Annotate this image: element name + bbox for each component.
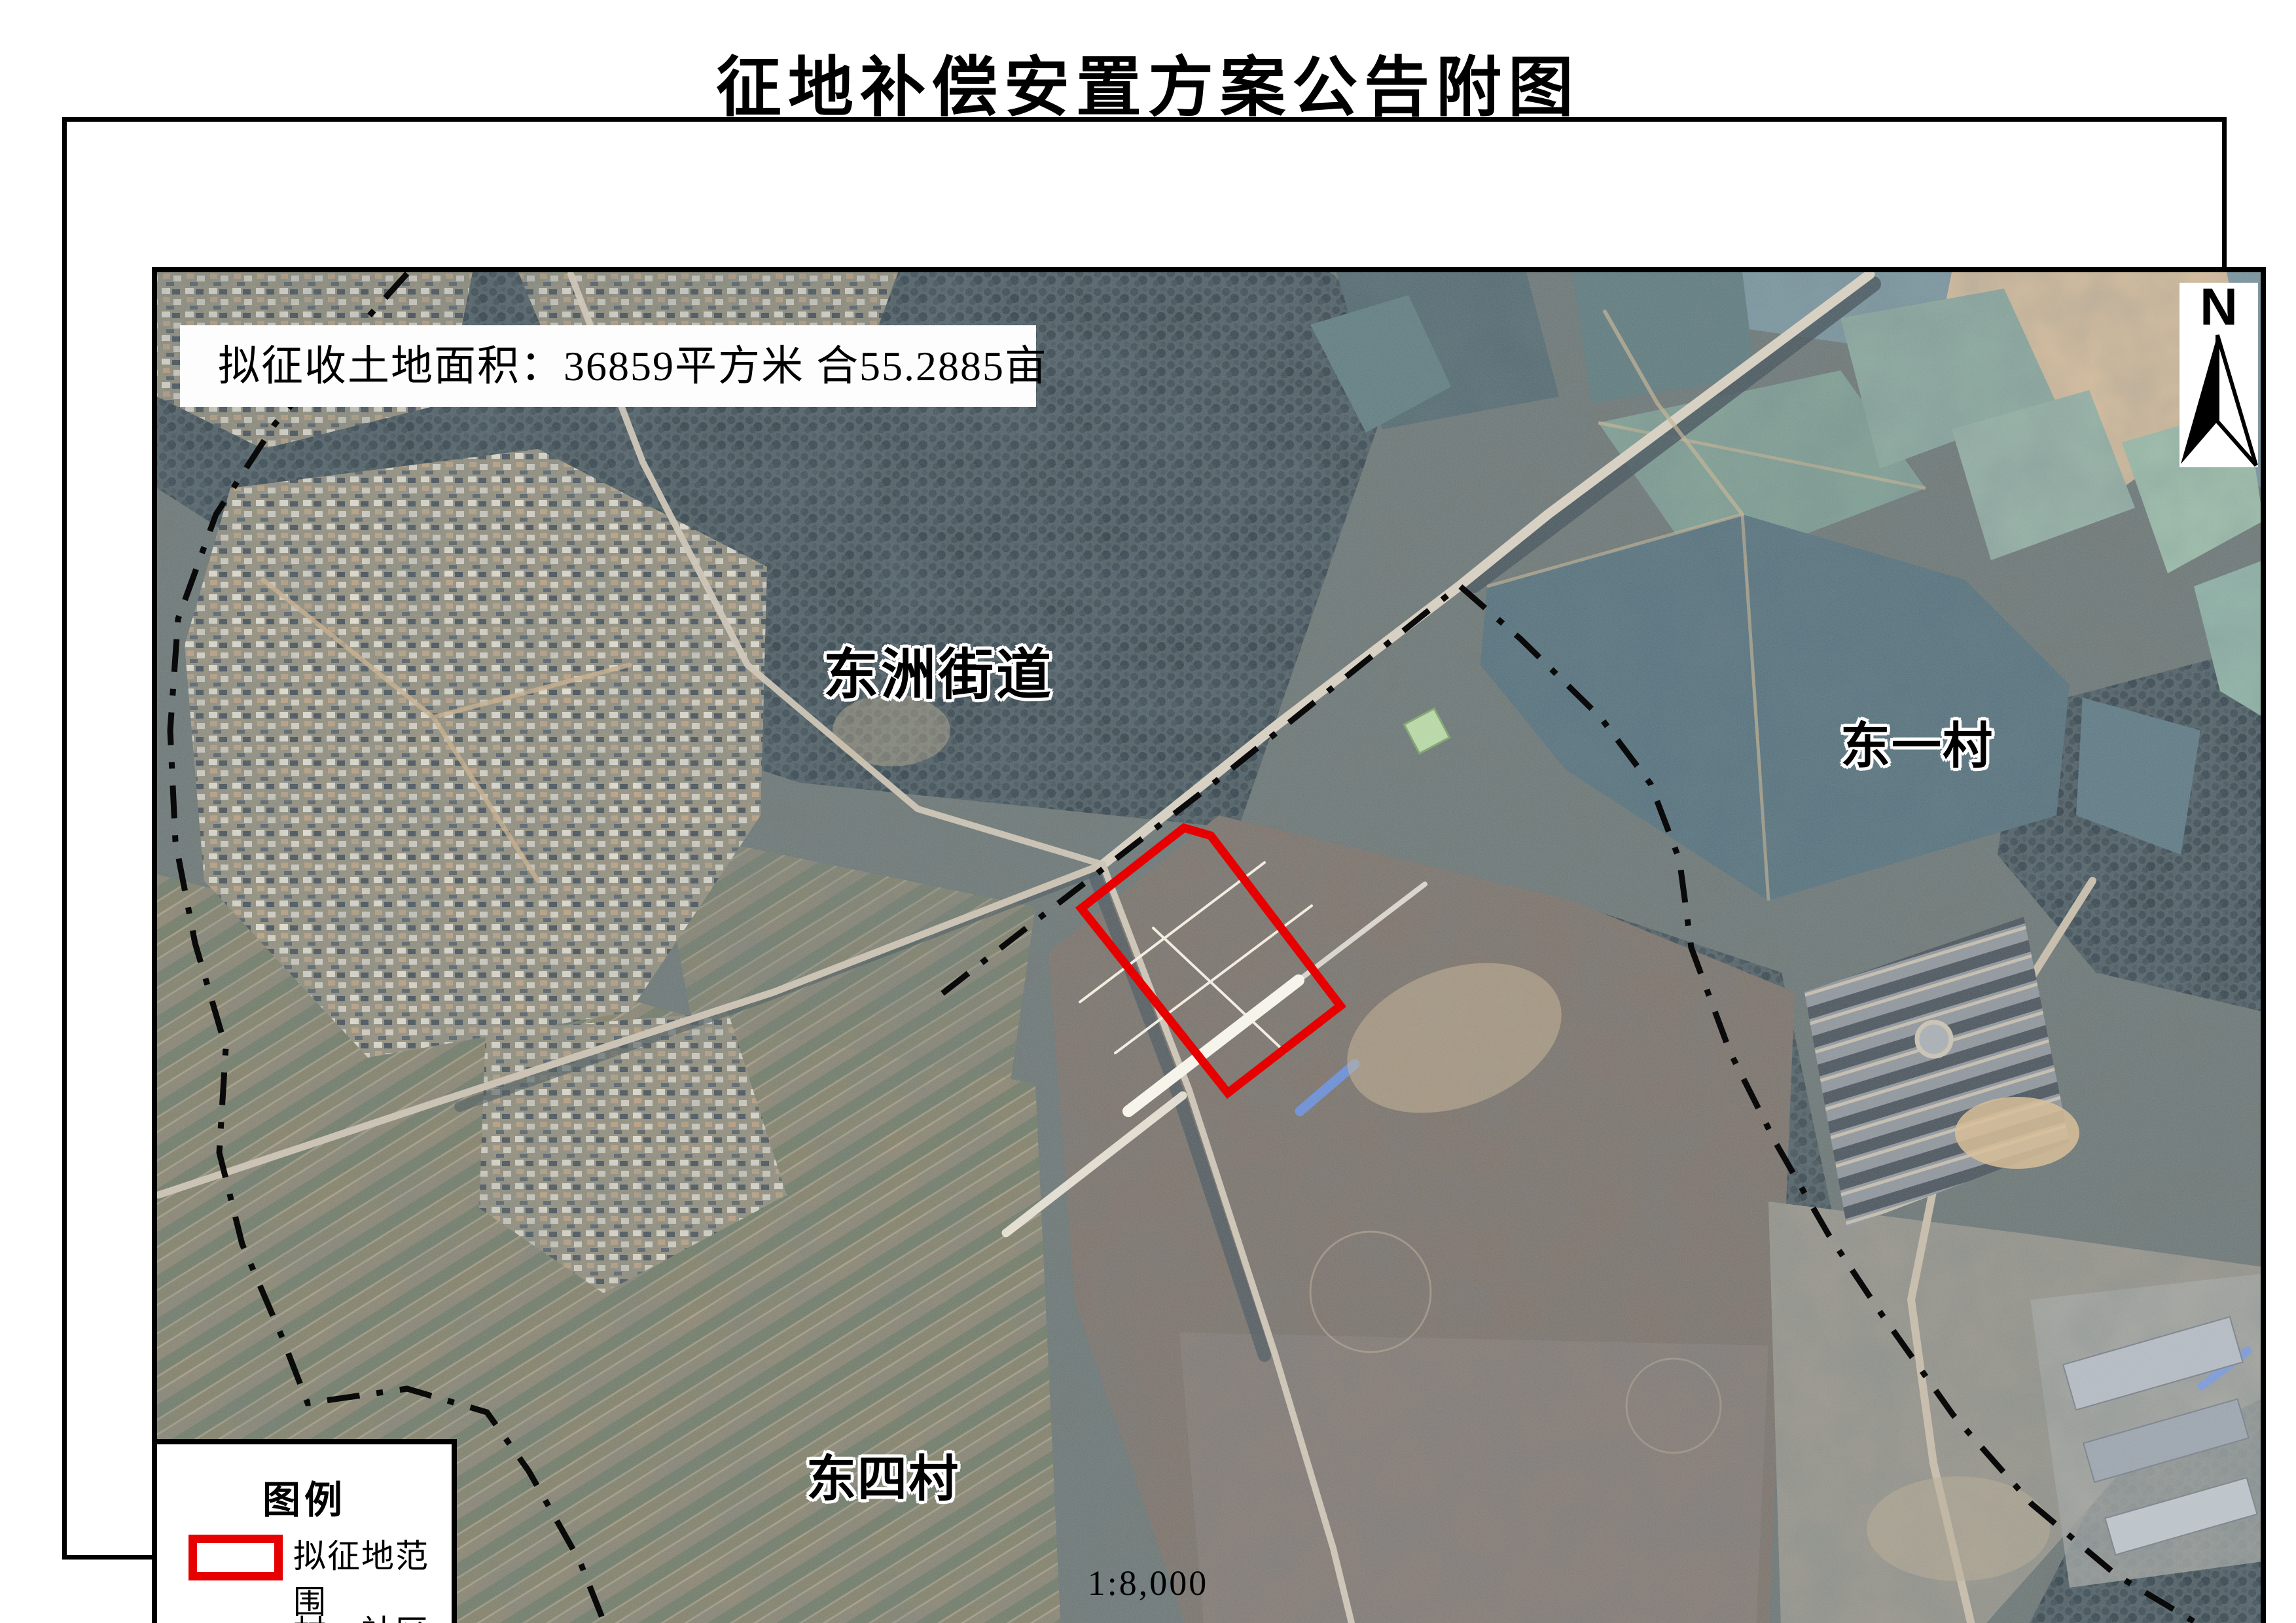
page-title: 征地补偿安置方案公告附图 <box>0 34 2296 129</box>
north-label: N <box>2179 283 2258 331</box>
north-indicator: N <box>2179 283 2258 467</box>
legend-item-village-boundary: 村、社区界 <box>157 1609 452 1623</box>
terrain-grain <box>157 272 2261 1623</box>
satellite-basemap <box>157 272 2261 1623</box>
legend-item-label: 村、社区界 <box>293 1609 452 1623</box>
north-arrow-icon <box>2179 331 2258 467</box>
map-label-dongzhou-street: 东洲街道 <box>823 631 1054 710</box>
legend-title: 图例 <box>157 1469 452 1524</box>
outer-frame: 拟征收土地面积：36859平方米 合55.2885亩 东洲街道 东一村 东四村 … <box>62 117 2227 1560</box>
announcement-sheet: 征地补偿安置方案公告附图 <box>0 0 2296 1623</box>
map-label-dongsi-village: 东四村 <box>806 1438 960 1510</box>
area-info-box: 拟征收土地面积：36859平方米 合55.2885亩 <box>180 325 1036 407</box>
area-info-text: 拟征收土地面积：36859平方米 合55.2885亩 <box>218 343 1048 389</box>
map-scale: 1:8,000 <box>0 1563 2296 1603</box>
map-label-dongyi-village: 东一村 <box>1840 705 1994 777</box>
map-frame: 拟征收土地面积：36859平方米 合55.2885亩 东洲街道 东一村 东四村 … <box>152 267 2266 1623</box>
